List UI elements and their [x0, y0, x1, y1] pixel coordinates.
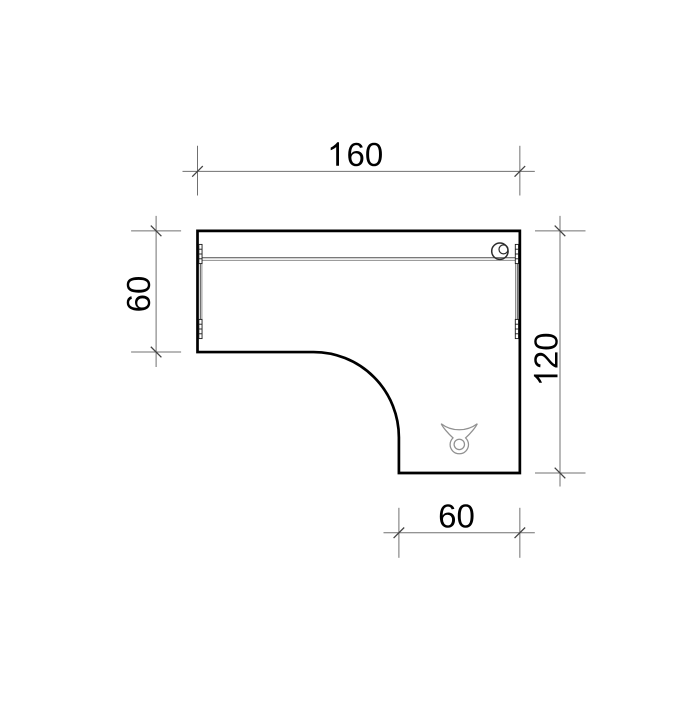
svg-text:60: 60 — [347, 136, 384, 173]
svg-text:60: 60 — [438, 498, 475, 535]
svg-text:20: 20 — [528, 332, 565, 369]
svg-text:60: 60 — [120, 276, 157, 313]
